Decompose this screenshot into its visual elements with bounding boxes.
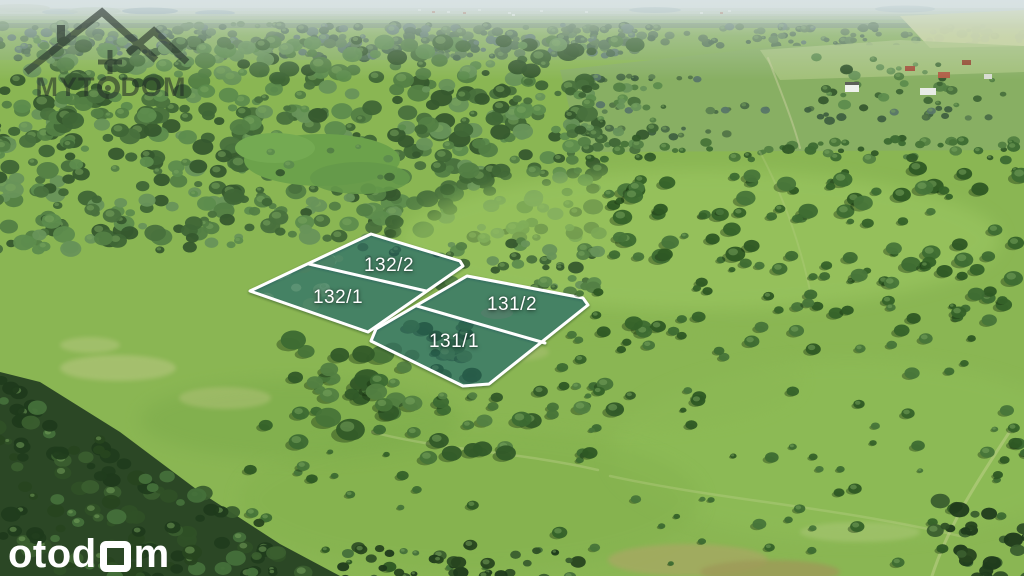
aerial-parcel-photo: 132/2132/1131/2131/1 MYT DOM otod m [0, 0, 1024, 576]
otodom-logo-watermark: otod m [8, 531, 170, 573]
brand-text-right: DOM [121, 74, 187, 101]
portal-text-suffix: m [134, 536, 170, 573]
portal-text-prefix: otod [8, 536, 97, 573]
square-o-glyph [100, 541, 131, 572]
brand-text-left: MYT [36, 74, 96, 101]
ring-o-glyph [97, 76, 120, 99]
mytodom-roof-icon [22, 4, 200, 79]
mytodom-logo-watermark: MYT DOM [22, 4, 200, 110]
mytodom-logo-text: MYT DOM [22, 74, 200, 101]
